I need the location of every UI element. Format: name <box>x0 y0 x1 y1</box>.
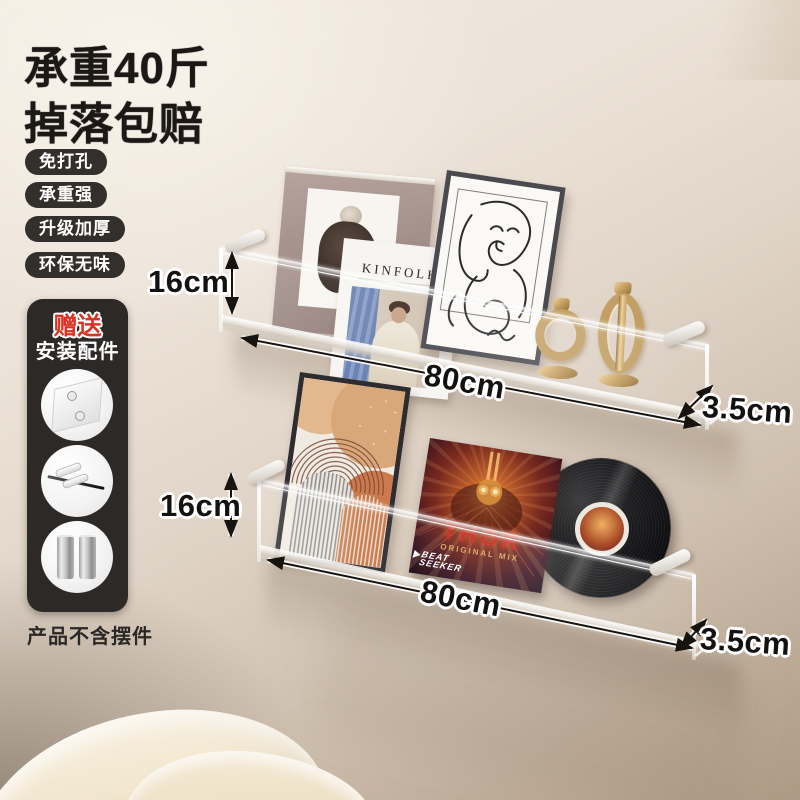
expansion-tube <box>79 535 96 579</box>
gift-title: 安装配件 <box>27 335 128 364</box>
hook-screw <box>67 391 77 401</box>
feature-badge-thickened: 升级加厚 <box>25 216 125 242</box>
feature-badge-odorless: 环保无味 <box>25 252 125 278</box>
feature-badge-strong-load: 承重强 <box>25 182 107 208</box>
bottom-shelf-height-label: 16cm <box>160 488 241 524</box>
hook-screw <box>75 411 85 421</box>
gift-card: 赠送 安装配件 <box>27 299 128 612</box>
headline-line-2: 掉落包赔 <box>24 88 204 152</box>
acrylic-plate <box>51 377 103 433</box>
top-shelf-height-label: 16cm <box>148 264 229 300</box>
hardware-expansion-tubes-photo <box>41 521 113 593</box>
hardware-adhesive-plate-photo <box>41 369 113 441</box>
bottom-shelf-depth-label: 3.5cm <box>699 621 792 663</box>
hardware-pins-photo <box>41 445 113 517</box>
feature-badge-no-drill: 免打孔 <box>25 149 107 175</box>
disclaimer-text: 产品不含摆件 <box>27 620 153 649</box>
product-banner: How Stephen KINFOLK <box>0 0 800 800</box>
top-shelf-depth-label: 3.5cm <box>701 389 794 431</box>
headline-line-1: 承重40斤 <box>24 32 210 96</box>
expansion-tube <box>57 535 74 579</box>
